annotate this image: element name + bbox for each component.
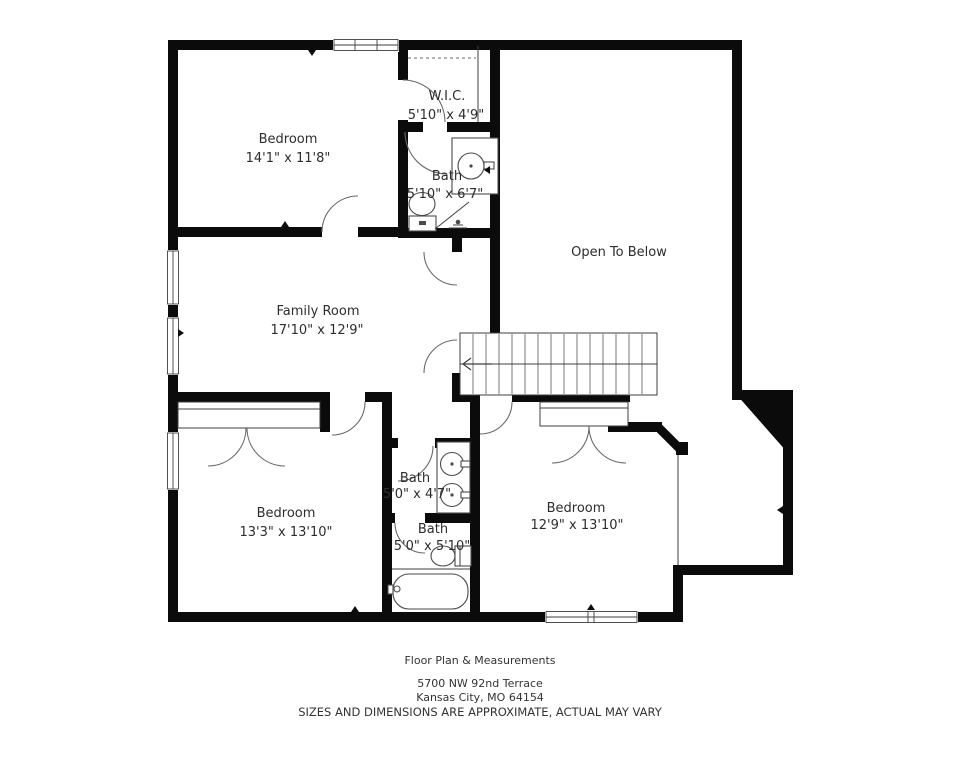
window-bedroom2-bottom [545, 610, 638, 624]
bedroom2-door [480, 402, 512, 434]
footer: Floor Plan & Measurements 5700 NW 92nd T… [298, 654, 663, 719]
bedroom1-dims: 14'1" x 11'8" [246, 151, 331, 166]
bedroom3-door [332, 402, 365, 435]
bath-top-door [405, 132, 447, 174]
bath-low-tub [388, 574, 468, 609]
bedroom2-label: Bedroom [547, 501, 606, 516]
closets [178, 402, 628, 466]
bath-mid-dims: 5'0" x 4'7" [383, 487, 451, 502]
family-double-door-a [424, 252, 457, 285]
bath-mid-vanity [437, 442, 470, 513]
family-double-door-b [424, 340, 457, 373]
floor-plan-page: Bedroom 14'1" x 11'8" W.I.C. 5'10" x 4'9… [0, 0, 960, 768]
wic-dims: 5'10" x 4'9" [408, 108, 484, 123]
staircase [460, 333, 657, 395]
bath-low-label: Bath [418, 522, 448, 537]
window-top-bedroom1 [333, 38, 399, 52]
floor-plan-drawing: Bedroom 14'1" x 11'8" W.I.C. 5'10" x 4'9… [0, 0, 960, 768]
window-bedroom3-left [166, 432, 180, 490]
footer-address-1: 5700 NW 92nd Terrace [417, 677, 543, 690]
family-room-label: Family Room [277, 304, 360, 319]
bedroom1-door [322, 196, 358, 232]
bath-top-label: Bath [432, 169, 462, 184]
footer-disclaimer: SIZES AND DIMENSIONS ARE APPROXIMATE, AC… [298, 705, 663, 719]
bedroom1-label: Bedroom [259, 132, 318, 147]
bath-low-dims: 5'0" x 5'10" [394, 539, 470, 554]
bath-top-dims: 5'10" x 6'7" [407, 187, 483, 202]
bedroom3-closet [178, 402, 320, 466]
footer-title: Floor Plan & Measurements [404, 654, 555, 667]
family-room-dims: 17'10" x 12'9" [271, 323, 364, 338]
bedroom2-closet [540, 402, 628, 463]
open-to-below-label: Open To Below [571, 245, 667, 260]
window-family-left-2 [166, 317, 180, 375]
bedroom3-dims: 13'3" x 13'10" [240, 525, 333, 540]
window-family-left-1 [166, 250, 180, 305]
footer-address-2: Kansas City, MO 64154 [416, 691, 544, 704]
bath-mid-label: Bath [400, 471, 430, 486]
angled-exterior-wall [736, 394, 792, 452]
bedroom3-label: Bedroom [257, 506, 316, 521]
bath-top-vanity [452, 138, 498, 194]
bath-top-shower [435, 202, 469, 229]
wic-label: W.I.C. [429, 89, 466, 104]
bedroom2-dims: 12'9" x 13'10" [531, 518, 624, 533]
